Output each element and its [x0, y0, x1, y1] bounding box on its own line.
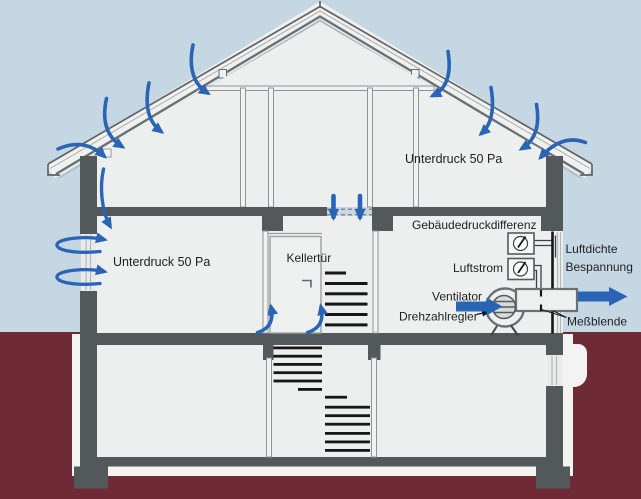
door-lintel [262, 216, 283, 231]
right-footing [536, 467, 570, 489]
basement-slab [80, 457, 563, 467]
label-luftstrom: Luftstrom [453, 261, 503, 275]
house-cross-section: Unterdruck 50 Pa Unterdruck 50 Pa Keller… [0, 0, 641, 499]
label-messblende: Meßblende [567, 315, 627, 329]
label-unterdruck-attic: Unterdruck 50 Pa [405, 152, 502, 166]
attic-floor-left [96, 207, 327, 216]
left-purlin [219, 70, 227, 79]
right-wall-basement-b [546, 386, 563, 467]
left-footing [74, 467, 108, 489]
label-drehzahlregler: Drehzahlregler [399, 310, 478, 324]
basement-interior [96, 345, 546, 457]
left-wall-upper [80, 156, 97, 234]
label-ventilator: Ventilator [432, 290, 482, 304]
label-bespannung: Bespannung [566, 260, 633, 274]
airflow-gauge [508, 259, 534, 280]
label-kellertuer: Kellertür [287, 251, 332, 265]
attic-floor-right [372, 207, 546, 216]
opening-lintel [541, 216, 563, 231]
label-unterdruck-ground: Unterdruck 50 Pa [113, 255, 210, 269]
basement-window [547, 355, 562, 386]
basement-light-well [563, 344, 587, 387]
fan-duct [516, 289, 577, 311]
label-luftdichte: Luftdichte [566, 242, 618, 256]
label-gebaeudedruckdifferenz: Gebäudedruckdifferenz [412, 218, 537, 232]
left-wall-lower [80, 291, 97, 467]
pressure-gauge [508, 233, 534, 254]
stair-lintel [372, 216, 393, 231]
blower-door-test-diagram: Unterdruck 50 Pa Unterdruck 50 Pa Keller… [0, 0, 641, 499]
